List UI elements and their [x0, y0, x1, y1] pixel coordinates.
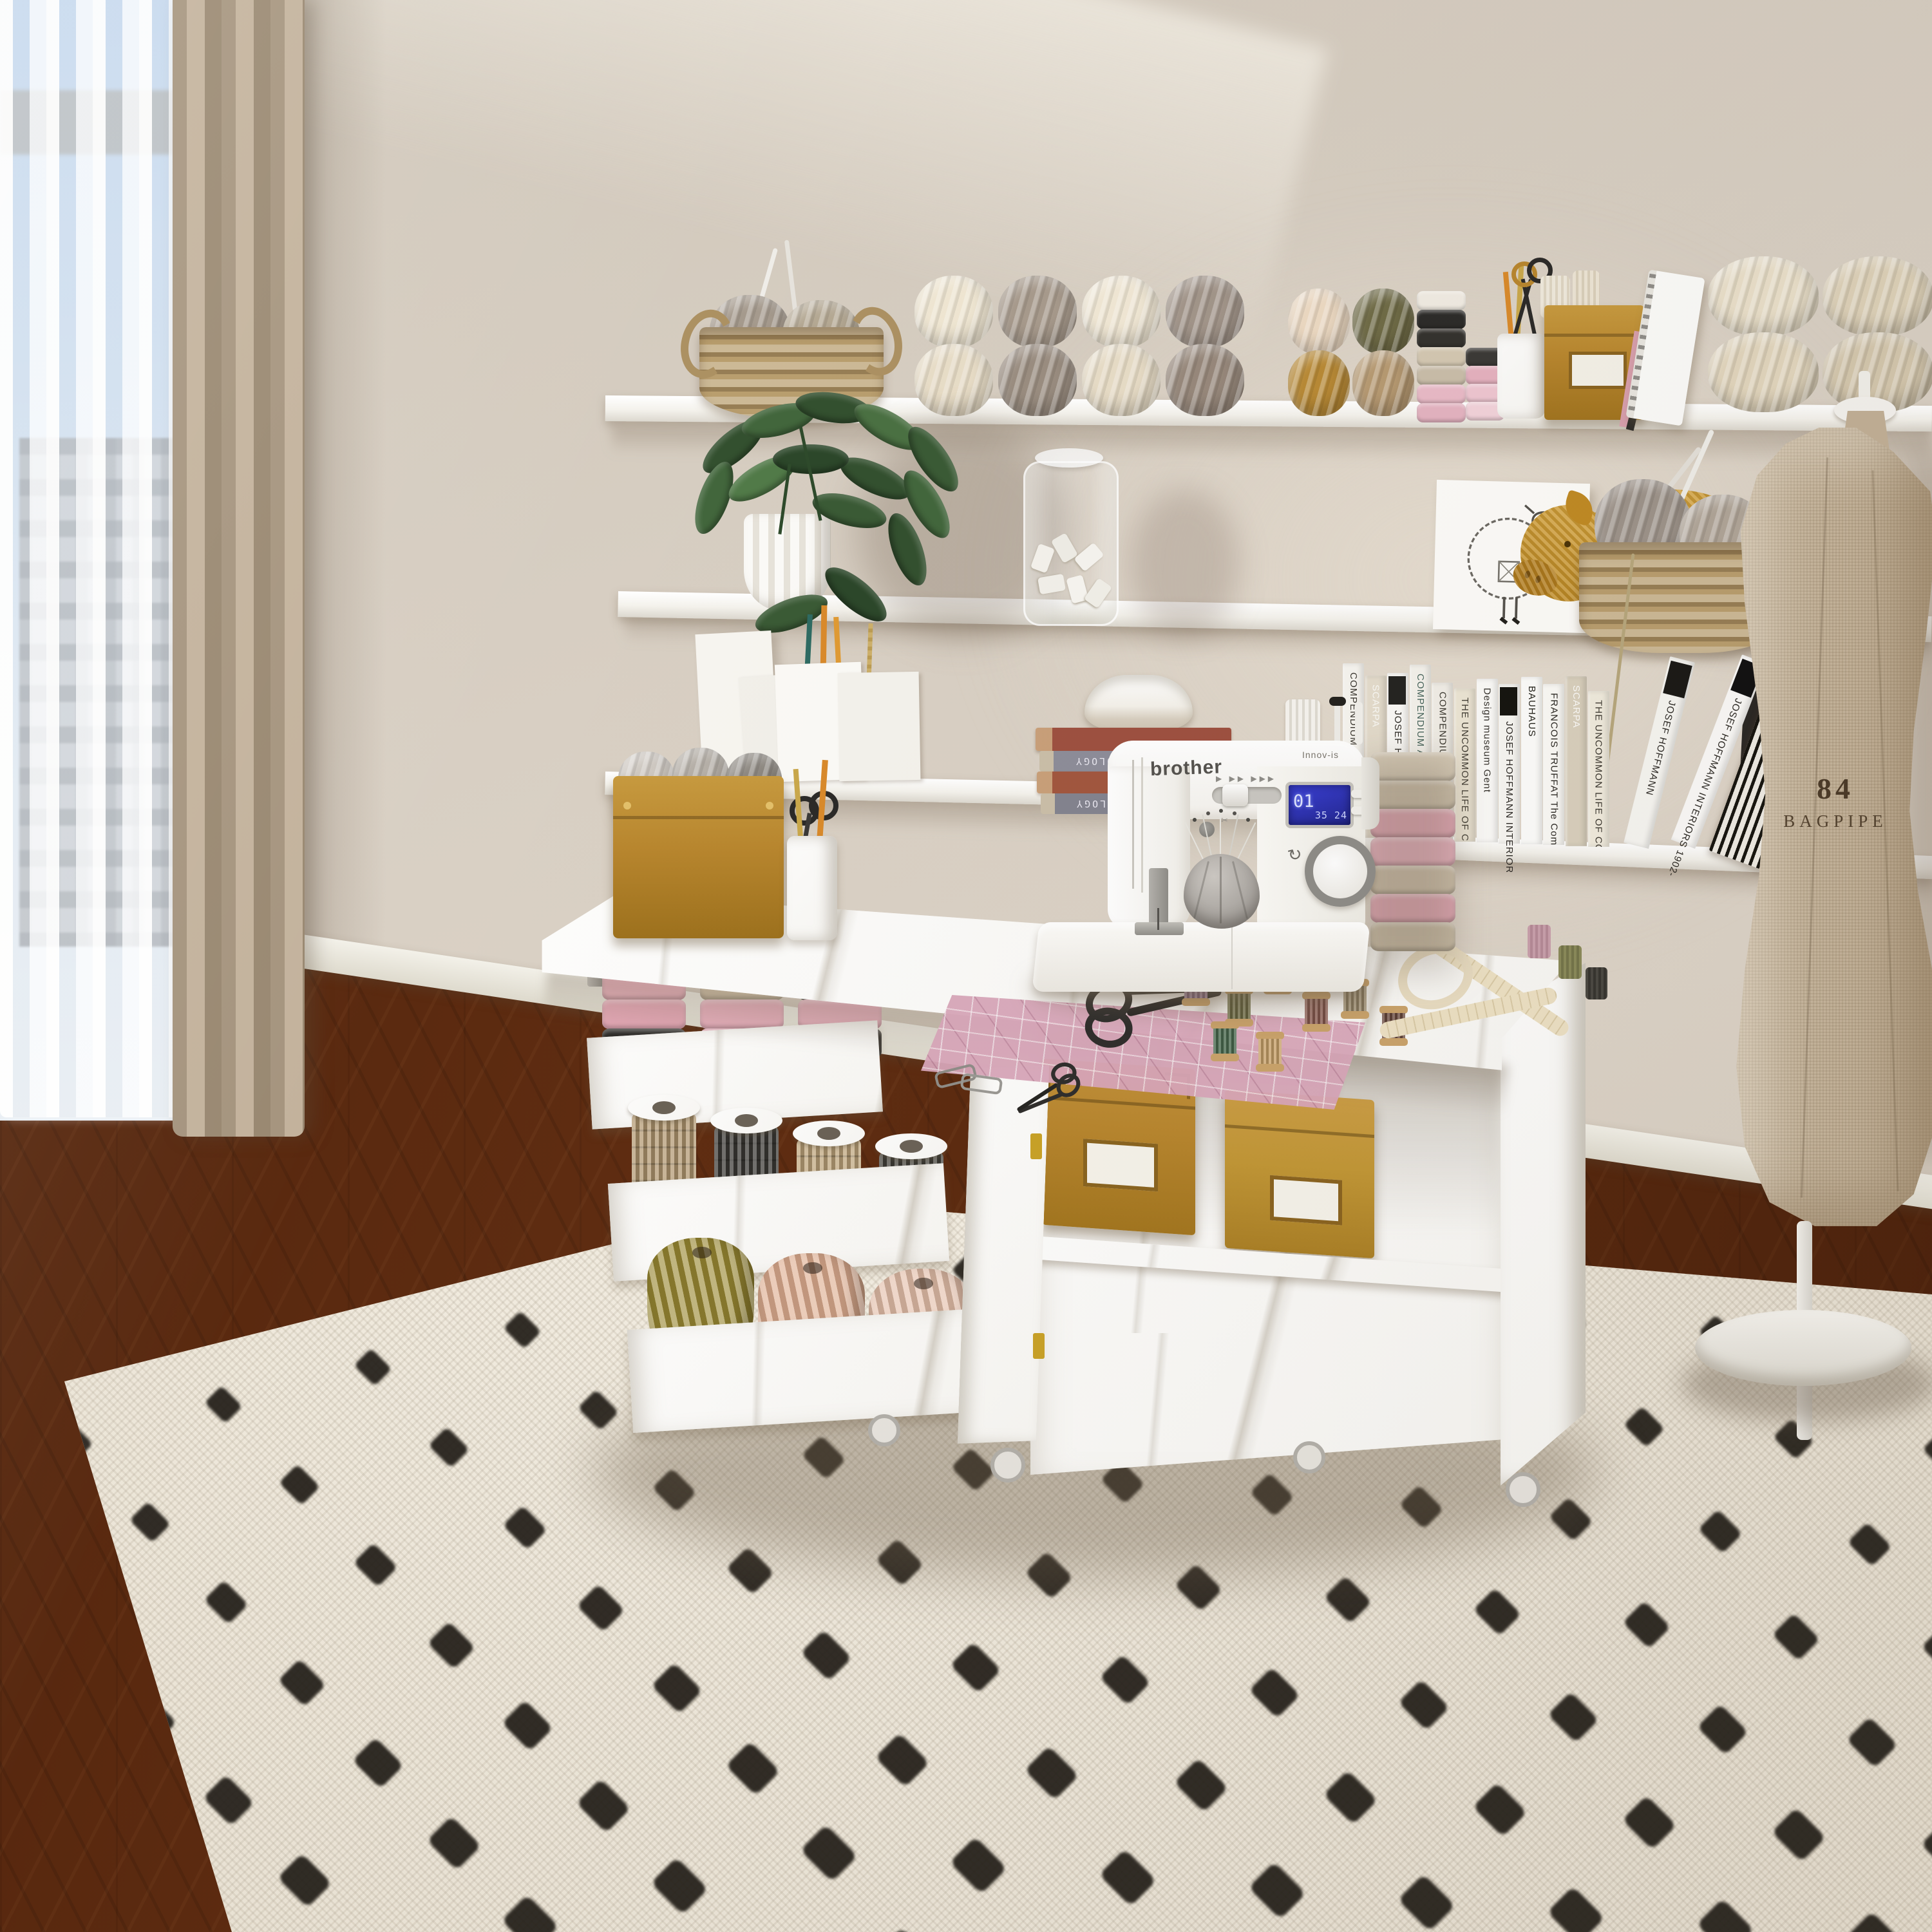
book-title: BAUHAUS — [1526, 686, 1537, 737]
handwheel — [1361, 757, 1379, 829]
box-lid-line — [1544, 334, 1644, 337]
rug-dot — [1249, 1472, 1294, 1517]
yarn-cake-hole — [692, 1247, 712, 1258]
rug-dot — [800, 1629, 852, 1681]
spool-flange — [1341, 1011, 1369, 1019]
rug-dot — [652, 1468, 696, 1512]
rug-dot — [1324, 1576, 1372, 1624]
rug-dot — [1846, 1911, 1904, 1932]
jar-lid-hole — [900, 1140, 923, 1153]
rug-dot — [1772, 1808, 1826, 1862]
craft-room-photo: FIELD PSYCHOLOGY FIELD PSYCHOLOGY COMPEN… — [0, 0, 1932, 1932]
mannequin-base — [1695, 1310, 1911, 1386]
rug-dot — [1922, 1625, 1932, 1674]
book-title: THE UNCOMMON LIFE OF COMMON OBJECTS — [1459, 697, 1470, 842]
book-title: THE UNCOMMON LIFE OF COMMON OBJECTS — [1593, 700, 1604, 847]
box-stud — [766, 802, 773, 810]
caster-wheel — [1506, 1472, 1540, 1507]
rug-dot — [1921, 1820, 1932, 1875]
rug-dot — [279, 1464, 320, 1505]
rug-dot — [428, 1426, 469, 1468]
needle — [1157, 908, 1159, 930]
spool-flange — [1182, 998, 1210, 1006]
rug-dot — [949, 1837, 1007, 1895]
ribbon-reel — [1370, 781, 1455, 810]
rug-dot — [1397, 1873, 1455, 1931]
rug-dot — [1696, 1899, 1754, 1932]
rug-dot — [576, 1778, 631, 1833]
caster-wheel — [868, 1414, 900, 1446]
yarn-cake-hole — [914, 1278, 933, 1289]
beige-curtain — [173, 0, 305, 1137]
holder-panel — [838, 672, 921, 781]
box-lid-line — [613, 816, 784, 819]
spool-flange — [1256, 1064, 1284, 1072]
book-spine: JOSEF HOFFMANN INTERIORS 1902-1913 — [1499, 684, 1520, 844]
rug-dot — [1846, 1716, 1898, 1768]
rug-dot — [1623, 1600, 1671, 1649]
rug-dot — [129, 1501, 171, 1542]
lcd-stitch-number: 01 — [1293, 791, 1314, 811]
ribbon-reel — [1370, 837, 1455, 866]
washi-tape — [1417, 310, 1466, 329]
yarn-ball — [1082, 276, 1160, 348]
book-spine: FRANCOIS TRUFFAT The Complete Films — [1543, 684, 1564, 845]
slider-knob — [1222, 784, 1248, 806]
rug-dot — [428, 1621, 476, 1669]
bobbin-winder — [1355, 702, 1363, 744]
rug-dot — [1548, 1692, 1599, 1743]
door-hinge — [1033, 1333, 1045, 1359]
ribbon-reel — [700, 999, 784, 1029]
pincushion — [1184, 854, 1260, 929]
rug-dot — [1175, 1563, 1223, 1611]
rug-dot — [1323, 1770, 1378, 1825]
needle-threader-mark: ✂ — [1221, 815, 1228, 826]
rug-dot — [1922, 1431, 1932, 1472]
ribbon-reel — [1370, 752, 1455, 781]
rug-dot — [278, 1658, 327, 1707]
yarn-ball — [1352, 289, 1414, 354]
book-spine: Design museum Gent — [1477, 679, 1498, 842]
rug-dot — [353, 1542, 397, 1587]
rug-dot — [651, 1662, 703, 1714]
rug-dot — [578, 1389, 619, 1430]
thread-spool — [1528, 925, 1551, 958]
drawer-front-3 — [627, 1308, 995, 1433]
washi-tape — [1417, 366, 1466, 385]
scissor-cup-table — [787, 836, 837, 940]
yarn-ball — [1166, 276, 1244, 348]
presser-foot — [1135, 922, 1184, 935]
rug-dot — [354, 1348, 392, 1386]
rug-dot — [501, 1894, 559, 1932]
cup-body — [1497, 334, 1545, 419]
spool-flange — [1211, 1054, 1239, 1061]
rug-dot — [1624, 1406, 1665, 1447]
rug-dot — [950, 1642, 1001, 1694]
potted-plant — [657, 386, 992, 625]
book-spine: THE UNCOMMON LIFE OF COMMON OBJECTS — [1588, 691, 1609, 847]
rug-dot — [1248, 1861, 1306, 1919]
craft-box-table — [613, 776, 784, 938]
book-spine: BAUHAUS — [1521, 677, 1542, 844]
yarn-ball — [1708, 256, 1819, 336]
thread-bobbin — [1030, 544, 1055, 573]
book-title: FRANCOIS TRUFFAT The Complete Films — [1548, 693, 1559, 845]
safety-pins — [935, 1061, 1012, 1094]
speed-marks: ▶ ▶▶ ▶▶▶ — [1216, 774, 1276, 783]
thread-spool — [1586, 967, 1607, 999]
yarn-ball — [1288, 289, 1350, 354]
wooden-spool — [1256, 1032, 1284, 1072]
box-stud — [623, 802, 631, 810]
thread-bobbin — [1037, 574, 1066, 595]
book-title: JOSEF HOFFMANN INTERIORS 1902-1913 — [1504, 693, 1515, 872]
rug-dot — [801, 1435, 846, 1479]
mannequin-brand: BAGPIPE — [1758, 811, 1913, 831]
rug-dot — [204, 1385, 242, 1423]
bobbin-jar — [1001, 444, 1137, 631]
rug-dot — [726, 1546, 775, 1595]
rug-dot — [204, 1580, 248, 1624]
box-label — [1270, 1175, 1342, 1226]
thread-spool — [1558, 945, 1582, 979]
yarn-ball — [1352, 350, 1414, 416]
model-label: Innov-is — [1302, 750, 1360, 760]
yarn-ball — [998, 276, 1077, 348]
ribbon-reel — [1370, 866, 1455, 895]
caster-wheel — [990, 1448, 1025, 1482]
yarn-ball — [1823, 256, 1932, 336]
rug-dot — [1099, 1654, 1151, 1706]
lcd-settings: 35 24 — [1315, 810, 1347, 821]
rug-dot — [1249, 1667, 1300, 1718]
cabinet-door-open — [958, 1063, 1050, 1446]
yarn-ball — [998, 344, 1077, 416]
thread-guide-slots — [1132, 760, 1134, 889]
spool-thread — [1213, 1028, 1236, 1054]
washi-tape — [1417, 384, 1466, 404]
rug-dot — [1772, 1613, 1821, 1661]
spool-pin-cap — [1329, 697, 1346, 706]
rug-dot — [203, 1774, 254, 1826]
box-body — [613, 776, 784, 938]
book-title: SCARPA — [1571, 685, 1582, 728]
spool-pin — [1334, 703, 1340, 743]
door-hinge — [1030, 1133, 1042, 1159]
book-spine: SCARPA — [1566, 676, 1587, 846]
rug-dot — [726, 1741, 781, 1795]
rug-dot — [1399, 1484, 1443, 1529]
mannequin-size: 84 — [1771, 772, 1900, 806]
rug-dot — [1025, 1745, 1079, 1800]
spool-thread — [1258, 1039, 1282, 1065]
thread-guide-slots — [1141, 757, 1143, 893]
yarn-ball — [914, 276, 993, 348]
spool-thread — [1305, 999, 1328, 1025]
rug-dot — [875, 1733, 930, 1788]
rug-dot — [1473, 1588, 1522, 1636]
sewing-machine: brother Innov-is ▶ ▶▶ ▶▶▶ ✂ 01 35 24 ↻ — [1095, 696, 1378, 998]
book-spine-label — [1388, 676, 1406, 705]
rug-dot — [577, 1584, 625, 1632]
rug-dot — [278, 1853, 332, 1908]
dress-form-mannequin: 84 BAGPIPE — [1732, 361, 1932, 1404]
storage-box — [1225, 1090, 1374, 1258]
rug-dot — [650, 1857, 708, 1915]
plant-leaf — [817, 558, 895, 630]
jar-lid-hole — [652, 1101, 676, 1114]
rug-dot — [874, 1927, 935, 1932]
jar-body — [1023, 461, 1119, 626]
washi-tape — [1417, 347, 1466, 366]
rug-dot — [1847, 1522, 1891, 1566]
washi-tape — [1417, 328, 1466, 348]
book-spine: THE UNCOMMON LIFE OF COMMON OBJECTS — [1454, 688, 1475, 842]
yarn-ball — [1166, 344, 1244, 416]
ribbon-reel — [1370, 809, 1455, 838]
rug-dot — [502, 1700, 553, 1751]
rug-dot — [503, 1311, 541, 1349]
rug-dot — [427, 1815, 482, 1870]
washi-tape — [1417, 403, 1466, 422]
ribbon-reel — [1370, 922, 1455, 951]
yarn-ball — [1082, 344, 1160, 416]
rug-dot — [502, 1505, 547, 1549]
rug-dot — [1174, 1758, 1229, 1813]
rug-dot — [876, 1539, 924, 1587]
yarn-ball — [1288, 350, 1350, 416]
rug-dot — [1398, 1679, 1450, 1730]
jar-lid-hole — [735, 1114, 758, 1127]
stitch-dial — [1305, 836, 1376, 907]
ribbon-reel — [602, 999, 686, 1029]
thread-bobbin — [1074, 542, 1104, 572]
pig-eye — [1564, 541, 1571, 547]
wooden-spool — [1211, 1021, 1239, 1061]
base-seam — [1231, 925, 1233, 989]
machine-base — [1032, 922, 1370, 992]
rug-dot — [1698, 1510, 1742, 1554]
washi-tape — [1417, 291, 1466, 310]
spool-flange — [1302, 1024, 1331, 1032]
cup-body — [787, 836, 837, 940]
ribbon-reel — [1370, 894, 1455, 923]
caster-wheel — [1293, 1441, 1325, 1473]
thread-bobbin — [1084, 578, 1112, 609]
rug-dot — [1473, 1783, 1528, 1837]
rug-dot — [352, 1737, 404, 1788]
rug-dot — [1548, 1497, 1593, 1541]
rug-dot — [800, 1824, 858, 1882]
lcd-panel: 01 35 24 — [1285, 782, 1354, 828]
book-spine-label — [1500, 687, 1517, 715]
rug-dot — [1622, 1795, 1677, 1850]
book-title: Design museum Gent — [1482, 688, 1493, 793]
rug-dot — [1025, 1551, 1074, 1599]
rug-dot — [1547, 1886, 1605, 1932]
box-label — [1083, 1139, 1158, 1191]
rug-dot — [1099, 1849, 1157, 1907]
rug-dot — [1697, 1704, 1748, 1756]
speed-slider — [1212, 787, 1282, 804]
yarn-cake-hole — [803, 1262, 822, 1274]
jar-lid-hole — [817, 1127, 840, 1140]
rug-dot — [951, 1447, 995, 1492]
craft-cup — [1497, 334, 1545, 419]
box-label — [1569, 352, 1627, 389]
thread-spool-top — [1285, 699, 1320, 746]
